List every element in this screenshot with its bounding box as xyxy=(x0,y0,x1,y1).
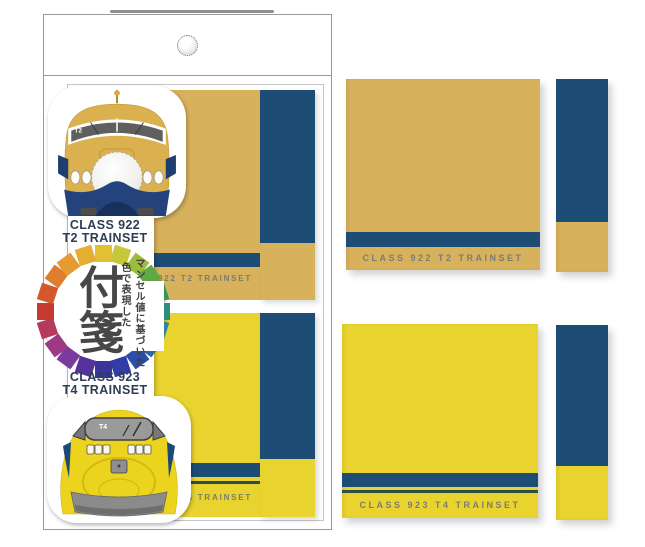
headlights-right xyxy=(128,445,151,454)
display-pad-922-label: CLASS 922 T2 TRAINSET xyxy=(346,253,540,263)
display-strip-923 xyxy=(556,325,608,520)
hang-hole xyxy=(177,35,198,56)
display-pad-923: CLASS 923 T4 TRAINSET xyxy=(342,324,538,518)
logo-tagline-col2: 色で表現した xyxy=(117,262,131,342)
display-strip-922 xyxy=(556,79,608,272)
side-marker-right xyxy=(166,155,176,179)
packed-strip-922-navy xyxy=(260,90,315,243)
package-header-fold xyxy=(43,75,331,76)
train-922-number: T2 xyxy=(74,128,82,135)
bumper-right xyxy=(137,208,153,215)
package-top-edge xyxy=(110,10,274,13)
train-923-illustration: T4 xyxy=(55,400,183,518)
display-pad-923-label: CLASS 923 T4 TRAINSET xyxy=(342,500,538,510)
logo-title-fusen: 付箋 xyxy=(72,264,122,369)
product-photo: CLASS 922 T2 TRAINSET CLASS 923 T4 TRAIN… xyxy=(0,0,645,547)
display-pad-922-stripe xyxy=(346,232,540,247)
card-class-922: CLASS 922 T2 TRAINSET xyxy=(45,219,165,245)
packed-strip-923-navy xyxy=(260,313,315,459)
logo-tagline-col1: マンセル値に基づいた xyxy=(131,258,145,383)
display-pad-922: CLASS 922 T2 TRAINSET xyxy=(346,79,540,270)
display-strip-922-navy xyxy=(556,79,608,222)
card-class-923-line2: T4 TRAINSET xyxy=(45,384,165,397)
display-strip-923-navy xyxy=(556,325,608,466)
headlights-left xyxy=(87,445,110,454)
train-922-illustration: T2 xyxy=(56,90,178,216)
packed-strip-923 xyxy=(260,313,315,517)
train-923-windshield xyxy=(85,418,153,440)
bumper-left xyxy=(80,208,96,215)
display-pad-923-thinline xyxy=(342,490,538,493)
card-class-923: CLASS 923 T4 TRAINSET xyxy=(45,371,165,397)
display-pad-923-stripe xyxy=(342,473,538,487)
train-923-number: T4 xyxy=(99,424,107,431)
side-marker-left xyxy=(58,155,68,179)
packed-strip-922 xyxy=(260,90,315,300)
card-class-922-line2: T2 TRAINSET xyxy=(45,232,165,245)
